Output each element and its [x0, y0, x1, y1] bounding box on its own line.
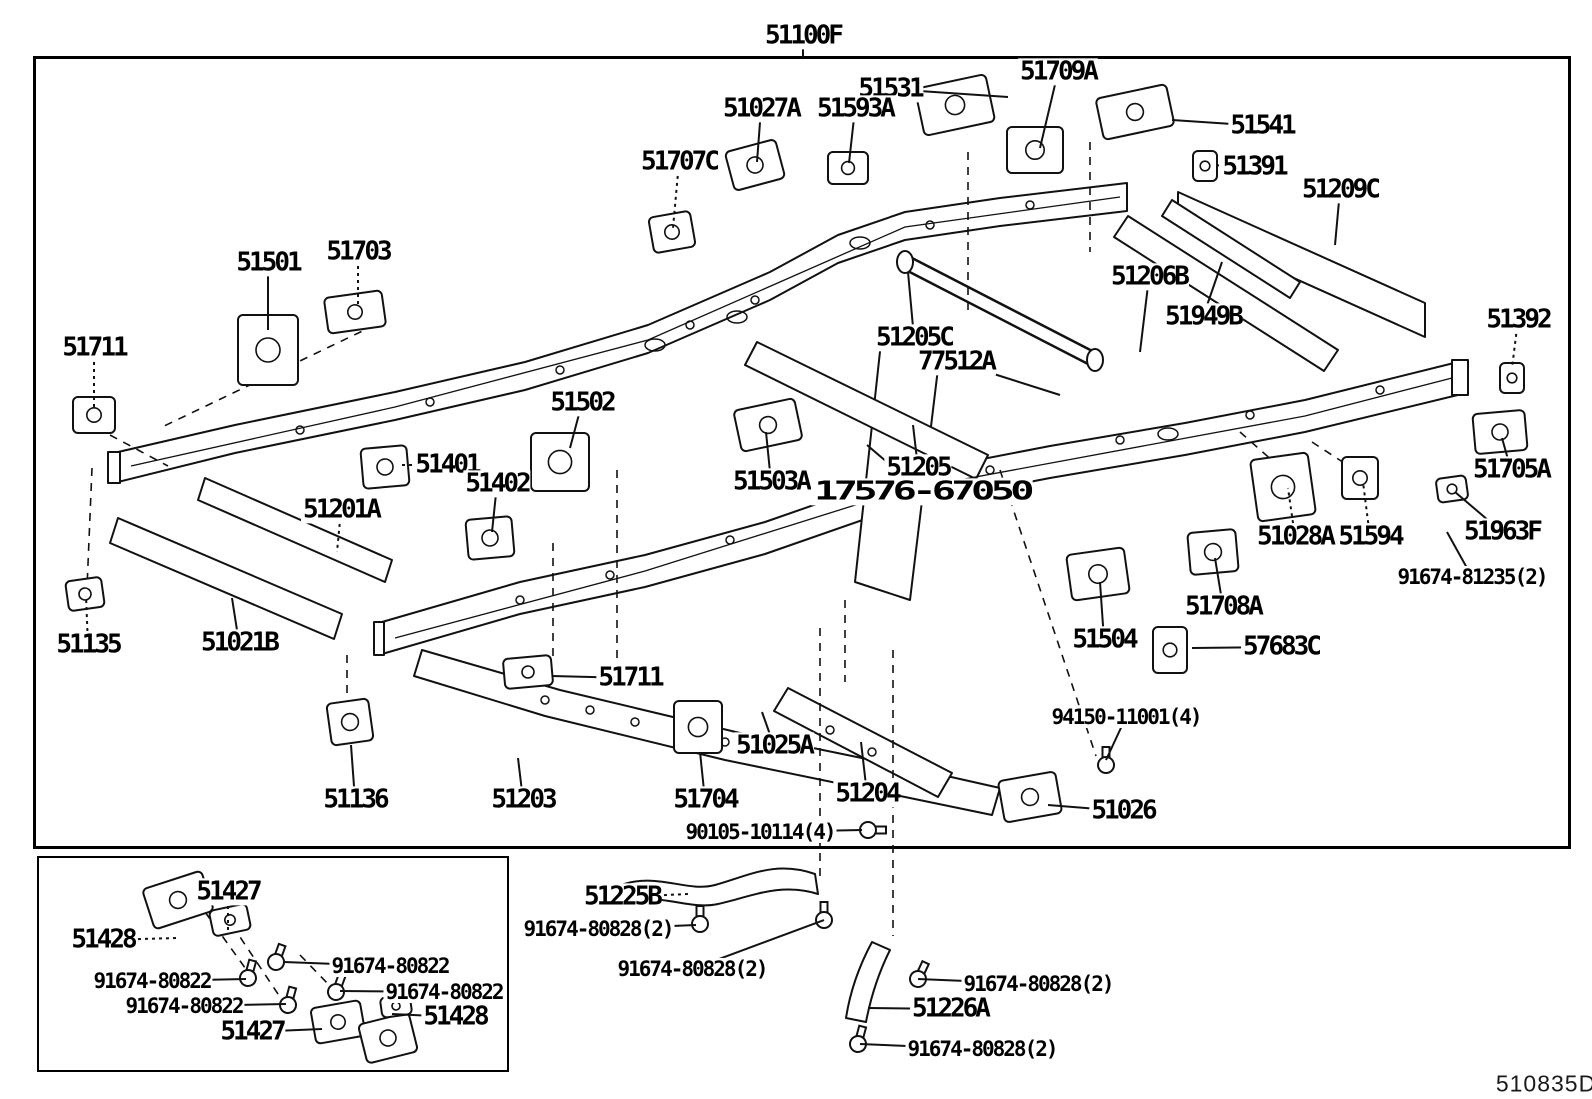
part-label-51705A: 51705A	[1471, 456, 1551, 483]
part-label-91674-81235(2): 91674-81235(2)	[1395, 566, 1548, 588]
part-label-91674-80822: 91674-80822	[91, 970, 212, 992]
part-label-51504: 51504	[1070, 626, 1137, 653]
part-label-51402: 51402	[463, 470, 530, 497]
part-label-17576-67050: 17576-67050	[811, 478, 1033, 505]
figure-code-label: 510835D	[1496, 1071, 1592, 1098]
part-label-91674-80822: 91674-80822	[329, 955, 450, 977]
part-label-51593A: 51593A	[815, 95, 895, 122]
part-label-51711: 51711	[60, 334, 127, 361]
bolt-part	[848, 1025, 870, 1054]
part-label-91674-80828(2): 91674-80828(2)	[615, 958, 768, 980]
part-label-51026: 51026	[1089, 797, 1156, 824]
part-label-51021B: 51021B	[199, 629, 279, 656]
part-label-51427: 51427	[218, 1018, 285, 1045]
part-label-51225B: 51225B	[582, 883, 662, 910]
part-label-51427: 51427	[194, 878, 261, 905]
part-label-51949B: 51949B	[1163, 303, 1243, 330]
part-label-51428: 51428	[421, 1003, 488, 1030]
part-label-91674-80828(2): 91674-80828(2)	[905, 1038, 1058, 1060]
part-label-51708A: 51708A	[1183, 593, 1263, 620]
part-label-51392: 51392	[1484, 306, 1551, 333]
bolt-part	[692, 906, 708, 932]
part-label-51711: 51711	[596, 664, 663, 691]
bolt-part	[816, 902, 832, 928]
parts-diagram-page: { "header": { "title_code": "51100F" }, …	[0, 0, 1592, 1099]
part-label-51704: 51704	[671, 786, 738, 813]
part-label-51428: 51428	[69, 926, 136, 953]
part-label-91674-80828(2): 91674-80828(2)	[961, 973, 1114, 995]
part-label-51226A: 51226A	[910, 995, 990, 1022]
part-label-51028A: 51028A	[1255, 523, 1335, 550]
part-label-51203: 51203	[489, 786, 556, 813]
part-label-51025A: 51025A	[734, 732, 814, 759]
part-label-77512A: 77512A	[916, 348, 996, 375]
part-label-51391: 51391	[1220, 153, 1287, 180]
part-label-51707C: 51707C	[639, 148, 719, 175]
part-label-51135: 51135	[54, 631, 121, 658]
part-label-51703: 51703	[324, 238, 391, 265]
part-label-51541: 51541	[1228, 112, 1295, 139]
part-label-91674-80822: 91674-80822	[123, 995, 244, 1017]
strap-51226A	[846, 942, 890, 1022]
part-label-51501: 51501	[234, 249, 301, 276]
part-label-90105-10114(4): 90105-10114(4)	[683, 821, 836, 843]
part-label-51502: 51502	[548, 389, 615, 416]
part-label-51594: 51594	[1336, 523, 1403, 550]
part-label-51204: 51204	[833, 780, 900, 807]
part-label-51027A: 51027A	[721, 95, 801, 122]
part-label-91674-80822: 91674-80822	[383, 981, 504, 1003]
part-label-51201A: 51201A	[301, 496, 381, 523]
part-label-51709A: 51709A	[1018, 58, 1098, 85]
bolt-part	[907, 959, 932, 989]
part-label-51209C: 51209C	[1300, 176, 1380, 203]
part-label-51206B: 51206B	[1109, 263, 1189, 290]
part-label-51136: 51136	[321, 786, 388, 813]
diagram-title-label: 51100F	[763, 22, 843, 49]
part-label-94150-11001(4): 94150-11001(4)	[1049, 706, 1202, 728]
part-label-57683C: 57683C	[1241, 633, 1321, 660]
part-label-51963F: 51963F	[1462, 518, 1542, 545]
part-label-51503A: 51503A	[731, 468, 811, 495]
part-label-91674-80828(2): 91674-80828(2)	[521, 918, 674, 940]
